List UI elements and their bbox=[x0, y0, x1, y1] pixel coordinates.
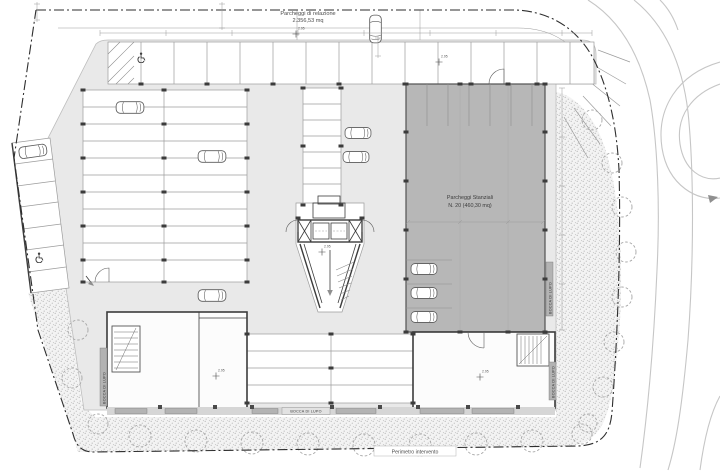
light-well-label: BOCCA DI LUPO bbox=[290, 410, 321, 414]
stanziali-title: Parcheggi Stanziali bbox=[447, 195, 493, 201]
car-icon bbox=[343, 152, 369, 163]
center-parking-strip bbox=[303, 88, 341, 205]
site-plan-svg: Parcheggi Stanziali N. 20 (460,30 mq) BO… bbox=[0, 0, 720, 473]
car-icon bbox=[370, 15, 382, 43]
svg-text:2.356,53 mq: 2.356,53 mq bbox=[292, 18, 323, 24]
site-plan-canvas: Parcheggi Stanziali N. 20 (460,30 mq) BO… bbox=[0, 0, 720, 473]
car-icon bbox=[411, 288, 437, 299]
svg-text:2.95: 2.95 bbox=[482, 370, 489, 374]
stanziali-zone: Parcheggi Stanziali N. 20 (460,30 mq) BO… bbox=[406, 84, 553, 332]
car-icon bbox=[116, 102, 144, 114]
relation-parking-label: Parcheggi di relazione 2.356,53 mq bbox=[280, 11, 335, 24]
perimeter-label: Perimetro intervento bbox=[374, 446, 456, 456]
car-icon bbox=[411, 312, 437, 323]
car-icon bbox=[345, 128, 371, 139]
car-icon bbox=[411, 264, 437, 275]
stanziali-count: N. 20 (460,30 mq) bbox=[448, 203, 492, 209]
light-well-label: BOCCA DI LUPO bbox=[103, 372, 107, 404]
svg-text:2.95: 2.95 bbox=[324, 245, 331, 249]
top-parking-row bbox=[108, 42, 594, 84]
light-well-label: BOCCA DI LUPO bbox=[552, 366, 556, 398]
svg-text:2.95: 2.95 bbox=[218, 369, 225, 373]
left-parking-grid bbox=[83, 90, 247, 282]
car-icon bbox=[198, 151, 226, 163]
svg-text:2.95: 2.95 bbox=[441, 55, 448, 59]
svg-text:Parcheggi di relazione: Parcheggi di relazione bbox=[280, 11, 335, 17]
svg-text:Perimetro intervento: Perimetro intervento bbox=[392, 449, 439, 455]
car-icon bbox=[198, 290, 226, 302]
light-well-label: BOCCA DI LUPO bbox=[549, 282, 553, 314]
stair-block bbox=[112, 326, 140, 372]
svg-text:2.95: 2.95 bbox=[298, 27, 305, 31]
stair-block bbox=[517, 334, 549, 366]
